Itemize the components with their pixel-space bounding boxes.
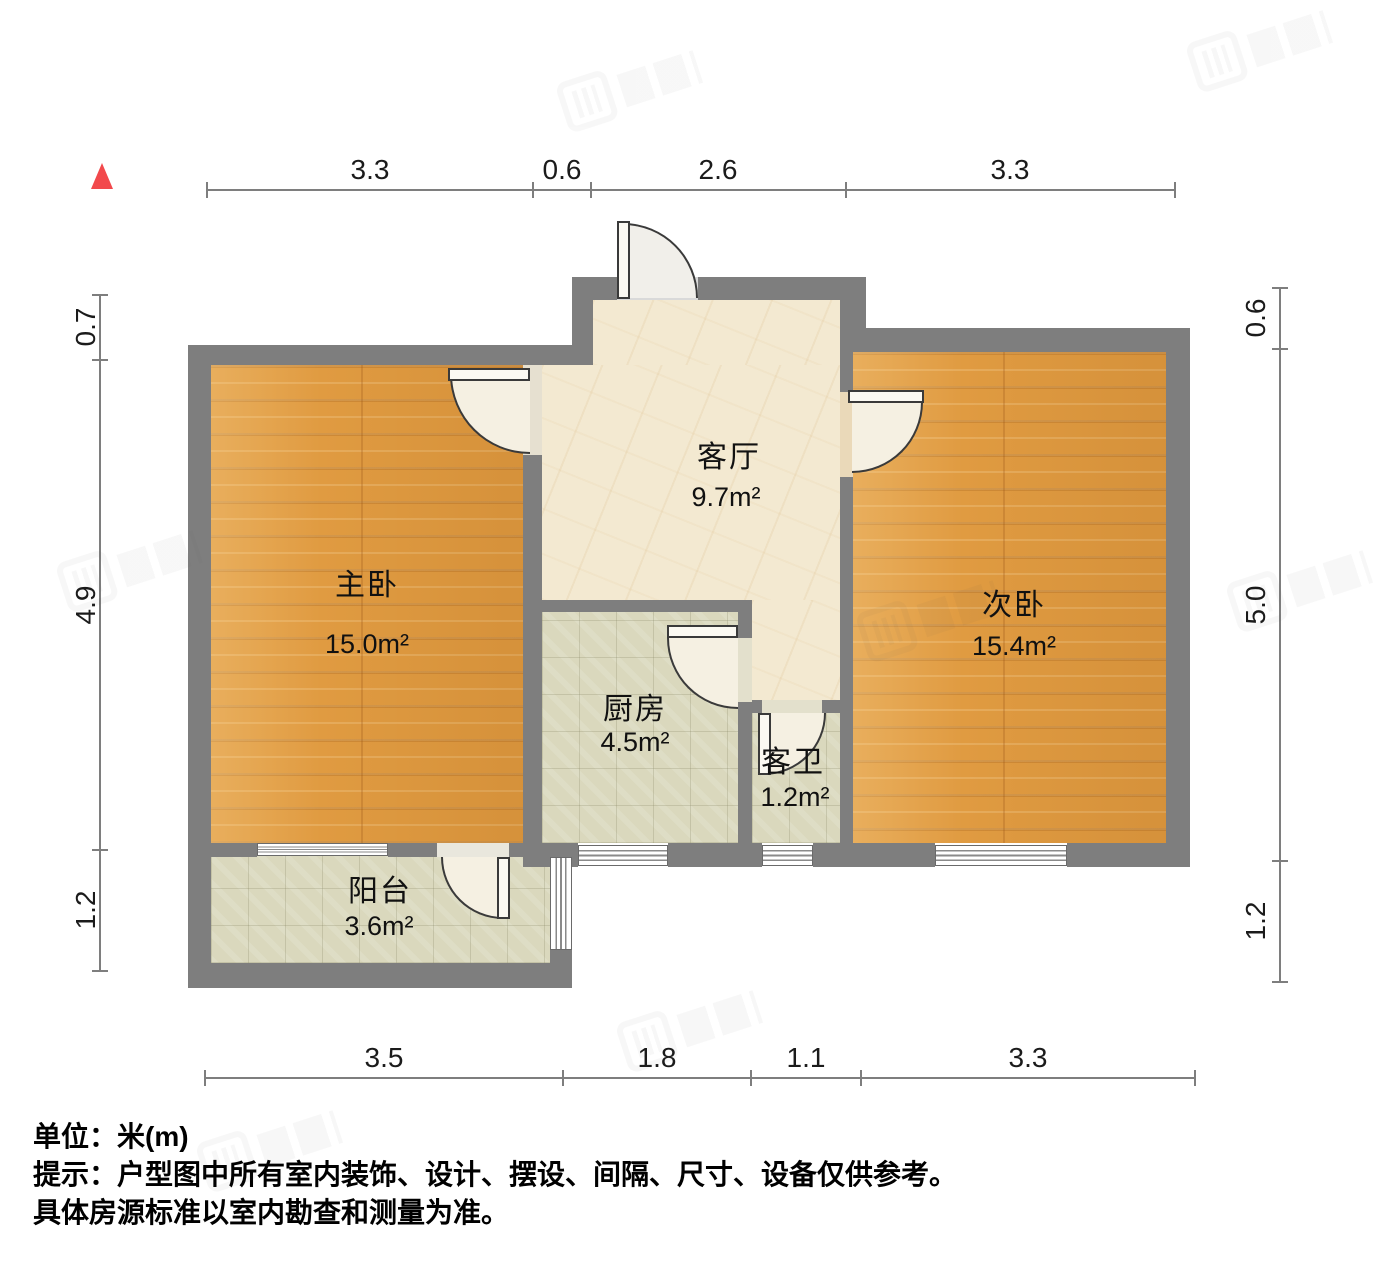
master-bedroom-label: 主卧 xyxy=(277,568,457,604)
bathroom-area: 1.2m² xyxy=(705,781,885,813)
kitchen-door-leaf xyxy=(667,625,738,638)
wall-bottom-2 xyxy=(668,843,762,867)
dim-bottom-4: 3.3 xyxy=(968,1042,1088,1074)
disclaimer-line-1: 提示：户型图中所有室内装饰、设计、摆设、间隔、尺寸、设备仅供参考。 xyxy=(33,1156,957,1194)
dim-left-2: 4.9 xyxy=(70,545,102,665)
dim-tick xyxy=(1174,182,1176,198)
dim-line-bottom xyxy=(205,1077,1195,1079)
master-bedroom-floor xyxy=(211,365,523,843)
dim-tick xyxy=(1272,287,1288,289)
wall-living-second-bedroom-upper xyxy=(840,352,853,392)
entrance-door-swing xyxy=(623,223,698,298)
dim-top-4: 3.3 xyxy=(950,154,1070,186)
disclaimer-line-2: 具体房源标准以室内勘查和测量为准。 xyxy=(33,1194,957,1232)
dim-tick xyxy=(1272,348,1288,350)
second-bedroom-area: 15.4m² xyxy=(924,630,1104,662)
dim-left-1: 0.7 xyxy=(70,267,102,387)
master-balcony-window xyxy=(257,843,388,856)
wall-entry-top-left xyxy=(572,277,617,300)
kitchen-door-opening xyxy=(738,638,752,702)
dim-bottom-2: 1.8 xyxy=(597,1042,717,1074)
dim-line-right xyxy=(1279,288,1281,982)
balcony-door-leaf xyxy=(497,857,510,919)
dim-tick xyxy=(92,970,108,972)
entrance-door-leaf xyxy=(617,221,630,299)
living-room-floor-entry xyxy=(593,300,840,365)
dim-right-3: 1.2 xyxy=(1240,861,1272,981)
wall-master-top xyxy=(188,345,593,365)
dim-line-top xyxy=(207,189,1175,191)
wall-left-exterior xyxy=(188,345,211,988)
dim-right-2: 5.0 xyxy=(1240,545,1272,665)
second-bedroom-label: 次卧 xyxy=(924,588,1104,624)
balcony-door-opening xyxy=(437,843,509,857)
wall-balcony-bottom xyxy=(188,963,572,988)
wall-right-exterior xyxy=(1166,328,1190,867)
watermark-icon xyxy=(1184,0,1345,102)
balcony-side-window xyxy=(550,857,572,950)
dim-bottom-3: 1.1 xyxy=(746,1042,866,1074)
watermark-icon xyxy=(554,38,715,141)
unit-note: 单位：米(m) xyxy=(33,1118,957,1156)
wall-master-kitchen-vertical xyxy=(523,455,542,843)
dim-tick xyxy=(562,1070,564,1086)
dim-bottom-1: 3.5 xyxy=(324,1042,444,1074)
kitchen-area: 4.5m² xyxy=(545,726,725,758)
wall-kitchen-right-upper xyxy=(738,600,752,638)
dim-tick xyxy=(1194,1070,1196,1086)
dim-top-3: 2.6 xyxy=(658,154,778,186)
dim-tick xyxy=(204,1070,206,1086)
north-marker-icon xyxy=(91,163,113,189)
living-room-label: 客厅 xyxy=(639,440,819,476)
kitchen-label: 厨房 xyxy=(545,692,725,728)
second-bedroom-door-leaf xyxy=(848,390,924,403)
bathroom-window xyxy=(762,845,813,866)
footnotes: 单位：米(m) 提示：户型图中所有室内装饰、设计、摆设、间隔、尺寸、设备仅供参考… xyxy=(33,1118,957,1232)
bathroom-door-opening xyxy=(762,700,822,713)
dim-top-1: 3.3 xyxy=(310,154,430,186)
balcony-area: 3.6m² xyxy=(289,910,469,942)
balcony-label: 阳台 xyxy=(290,874,470,910)
wall-living-kitchen xyxy=(523,600,752,612)
second-bedroom-window xyxy=(935,845,1067,866)
wall-second-bedroom-top xyxy=(840,328,1190,352)
dim-top-2: 0.6 xyxy=(502,154,622,186)
master-bedroom-area: 15.0m² xyxy=(277,628,457,660)
dim-tick xyxy=(1272,860,1288,862)
living-room-area: 9.7m² xyxy=(636,481,816,513)
master-door-leaf xyxy=(448,368,530,381)
kitchen-window xyxy=(578,845,668,866)
wall-master-balcony-2 xyxy=(388,843,437,857)
dim-right-1: 0.6 xyxy=(1240,258,1272,378)
wall-bottom-3 xyxy=(813,843,935,867)
dim-tick xyxy=(1272,981,1288,983)
bathroom-label: 客卫 xyxy=(703,745,883,781)
floor-plan-page: 主卧 15.0m² 客厅 9.7m² 次卧 15.4m² 厨房 4.5m² 客卫… xyxy=(0,0,1380,1266)
wall-bottom-4 xyxy=(1067,843,1190,867)
dim-tick xyxy=(206,182,208,198)
dim-left-3: 1.2 xyxy=(70,850,102,970)
dim-tick xyxy=(845,182,847,198)
wall-master-balcony-1 xyxy=(211,843,257,857)
living-room-floor-corridor xyxy=(752,600,840,713)
